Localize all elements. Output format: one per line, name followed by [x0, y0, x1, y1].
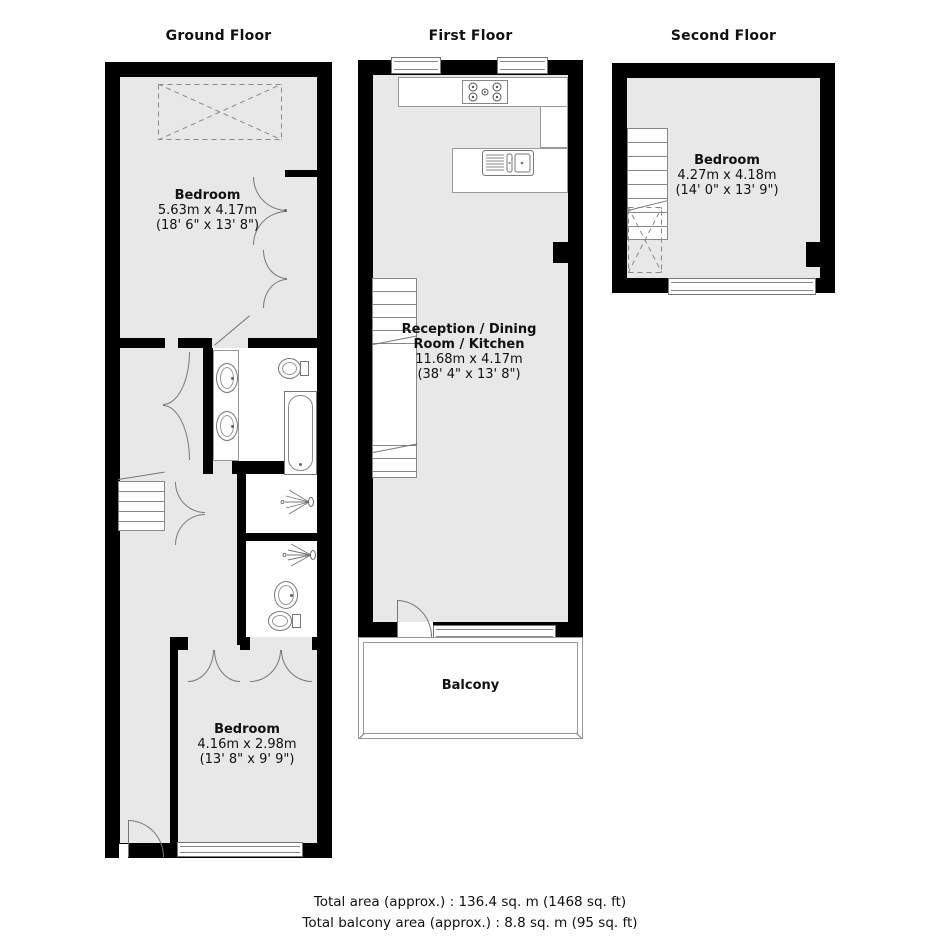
- door-leaf: [397, 600, 398, 637]
- wall: [203, 348, 213, 474]
- wall: [248, 338, 317, 348]
- room-label-reception: Reception / Dining Room / Kitchen 11.68m…: [383, 322, 555, 382]
- room-label-bedroom-bottom: Bedroom 4.16m x 2.98m (13' 8" x 9' 9"): [172, 722, 322, 767]
- wall: [246, 533, 317, 541]
- basin-drain: [231, 377, 234, 380]
- basin-drain: [231, 425, 234, 428]
- kitchen-counter: [540, 106, 568, 148]
- wall-stub: [285, 170, 317, 177]
- toilet-icon: [268, 611, 292, 631]
- basin-icon: [216, 411, 238, 441]
- footer-totals: Total area (approx.) : 136.4 sq. m (1468…: [0, 892, 940, 934]
- bathtub-drain: [299, 463, 302, 466]
- window: [391, 57, 441, 74]
- wall-notch: [553, 242, 568, 263]
- door-leaf: [128, 820, 129, 857]
- balcony: Balcony: [358, 637, 583, 739]
- basin-icon: [274, 581, 298, 609]
- wall-notch: [806, 242, 820, 267]
- second-floor-title: Second Floor: [612, 28, 835, 44]
- door-threshold: [119, 844, 128, 858]
- wall: [312, 637, 317, 650]
- skylight-void-icon: [158, 84, 282, 140]
- basin-icon: [216, 363, 238, 393]
- toilet-cistern: [300, 361, 309, 376]
- window: [497, 57, 548, 74]
- wall: [178, 338, 212, 348]
- total-area-text: Total area (approx.) : 136.4 sq. m (1468…: [0, 892, 940, 913]
- ground-floor-title: Ground Floor: [105, 28, 332, 44]
- void-dashed-box-icon: [628, 207, 662, 273]
- basin-tap: [290, 594, 293, 597]
- room-label-balcony: Balcony: [359, 678, 582, 693]
- hob-icon: [462, 80, 508, 104]
- toilet-icon: [278, 358, 301, 379]
- shower-icon: [281, 541, 319, 569]
- toilet-cistern: [292, 614, 301, 628]
- wall-stub: [240, 637, 250, 650]
- wall: [170, 637, 188, 650]
- kitchen-sink-icon: [482, 150, 534, 176]
- room-label-bedroom-top: Bedroom 5.63m x 4.17m (18' 6" x 13' 8"): [120, 188, 295, 233]
- window: [668, 278, 816, 295]
- total-balcony-area-text: Total balcony area (approx.) : 8.8 sq. m…: [0, 913, 940, 934]
- floorplan-image: Ground Floor First Floor Second Floor: [0, 0, 940, 940]
- wall: [120, 338, 165, 348]
- shower-icon: [279, 487, 317, 517]
- room-label-bedroom-second: Bedroom 4.27m x 4.18m (14' 0" x 13' 9"): [652, 153, 802, 198]
- window: [177, 842, 303, 857]
- stairs: [118, 481, 165, 531]
- first-floor-title: First Floor: [358, 28, 583, 44]
- wall: [237, 474, 246, 645]
